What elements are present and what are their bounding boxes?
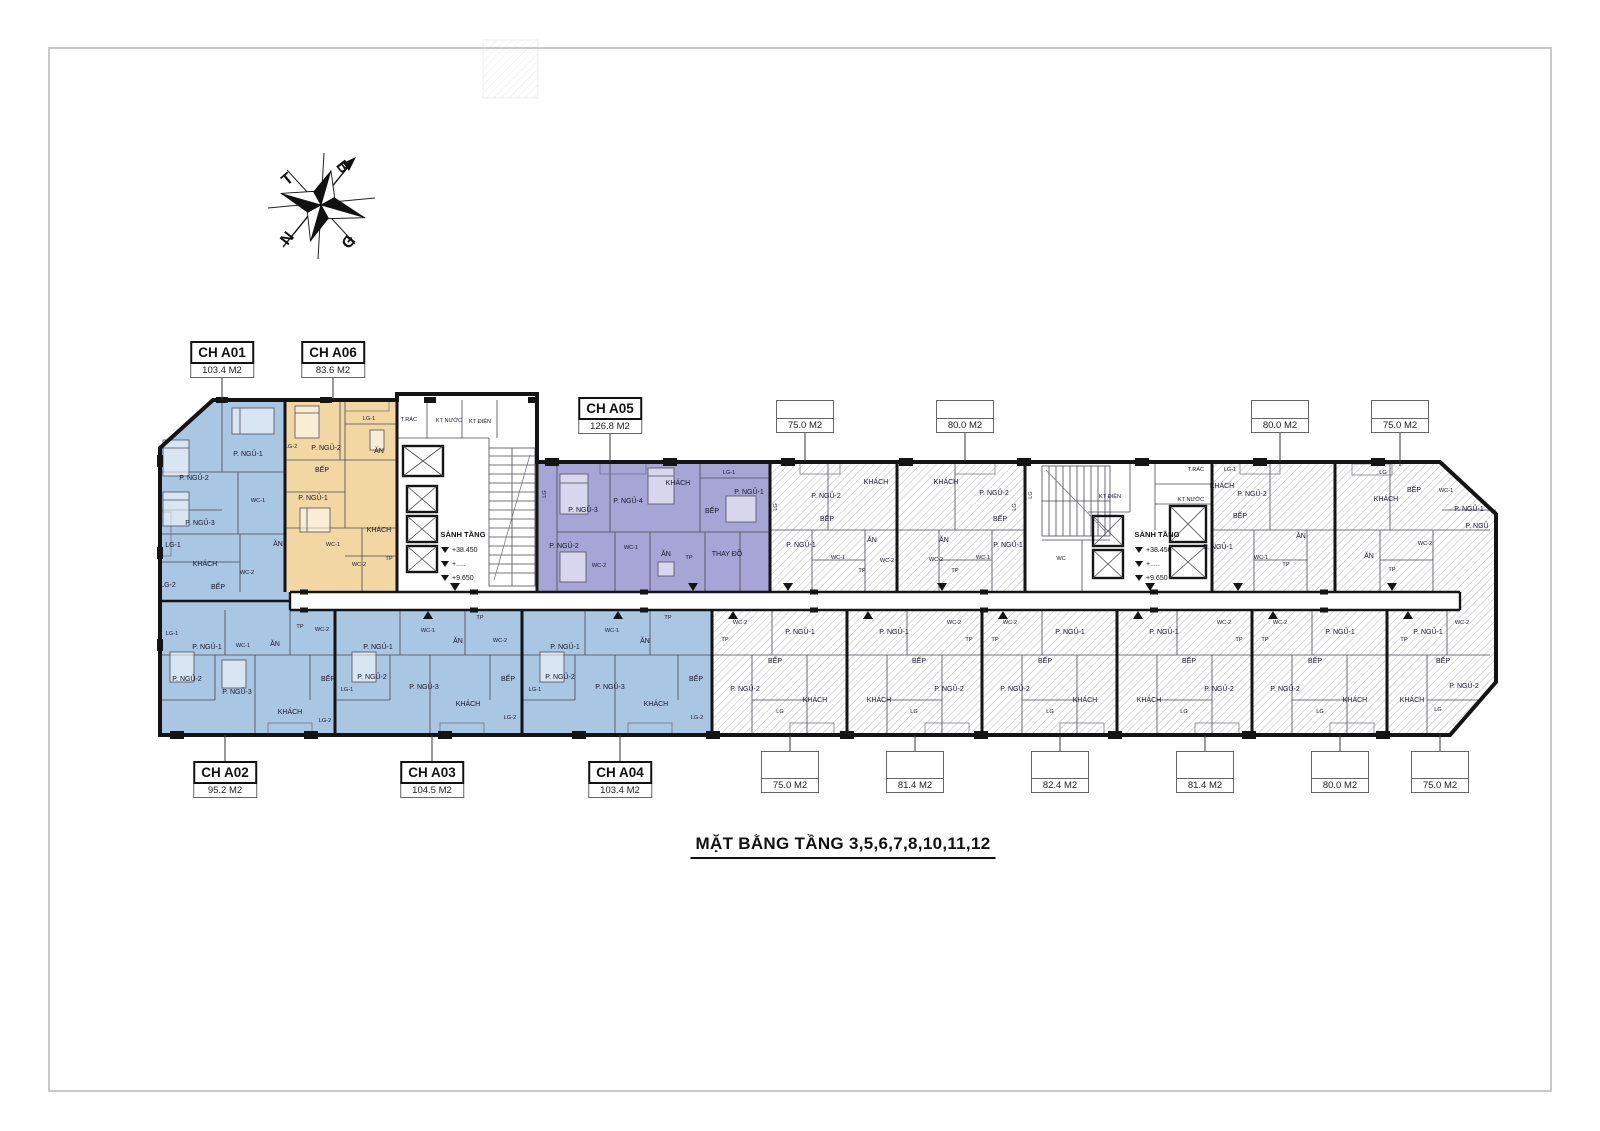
unit-tag-a04: CH A04 103.4 M2: [588, 761, 652, 798]
room-label: LG-2: [319, 718, 331, 724]
room-label: KHÁCH: [1374, 494, 1399, 503]
room-label: KHÁCH: [456, 699, 481, 708]
room-label: TP: [858, 568, 865, 574]
unit-area: 103.4 M2: [190, 364, 254, 378]
room-label: LG-2: [691, 715, 703, 721]
unit-area: 80.0 M2: [1311, 779, 1369, 793]
unit-top-2-fill: [897, 462, 1025, 592]
unit-bottom-5-fill: [1252, 610, 1387, 735]
room-label: P. NGỦ-2: [1000, 684, 1030, 693]
room-label: KHÁCH: [1343, 695, 1368, 704]
level-label: +38.450: [452, 547, 478, 554]
unit-code: CH A01: [190, 341, 254, 364]
room-label: KHÁCH: [934, 477, 959, 486]
room-label: LG: [1434, 707, 1441, 713]
room-label: T.RÁC: [1188, 466, 1204, 473]
room-label: TP: [965, 637, 972, 643]
room-label: TP: [1282, 562, 1289, 568]
level-label: +38.450: [1146, 547, 1172, 554]
drawing-sheet: B T N Đ: [0, 0, 1600, 1131]
unit-tag-bottom-6: 75.0 M2: [1411, 751, 1469, 793]
room-label: KHÁCH: [278, 707, 303, 716]
room-label: WC-1: [624, 545, 638, 551]
unit-top-4-fill: [1335, 462, 1496, 610]
unit-area: 75.0 M2: [1371, 419, 1429, 433]
compass-west-label: T: [278, 170, 297, 189]
room-label: WC-2: [947, 620, 961, 626]
room-label: WC-2: [880, 558, 894, 564]
room-label: TP: [1388, 567, 1395, 573]
room-label: P. NGỦ-4: [613, 496, 643, 505]
room-label: KHÁCH: [864, 477, 889, 486]
room-label: KHÁCH: [803, 695, 828, 704]
room-label: WC-1: [421, 628, 435, 634]
room-label: TP: [685, 555, 692, 561]
room-label: ĂN: [1296, 531, 1306, 540]
level-label: +.....: [1146, 561, 1160, 568]
room-label: LG-1: [165, 542, 181, 549]
unit-area: 75.0 M2: [776, 419, 834, 433]
room-label: P. NGỦ-2: [979, 488, 1009, 497]
unit-area: 82.4 M2: [1031, 779, 1089, 793]
room-label: P. NGỦ-2: [1449, 681, 1479, 690]
room-label: WC-2: [929, 557, 943, 563]
room-label: P. NGỦ-1: [298, 493, 328, 502]
room-label: WC-1: [326, 542, 340, 548]
room-label: P. NGỦ-3: [595, 682, 625, 691]
unit-code-empty: [1311, 751, 1369, 779]
unit-tag-a06: CH A06 83.6 M2: [301, 341, 365, 378]
room-label: TP: [476, 615, 483, 621]
unit-area: 75.0 M2: [1411, 779, 1469, 793]
unit-tag-top-4: 75.0 M2: [1371, 400, 1429, 433]
unit-code-empty: [886, 751, 944, 779]
room-label: P. NGỦ-1: [192, 642, 222, 651]
room-label: P. NGỦ-2: [811, 491, 841, 500]
room-label: P. NGỦ-2: [549, 541, 579, 550]
unit-area: 81.4 M2: [1176, 779, 1234, 793]
unit-area: 81.4 M2: [886, 779, 944, 793]
room-label: WC-2: [592, 563, 606, 569]
room-label: KHÁCH: [644, 699, 669, 708]
room-label: P. NGỦ-1: [1203, 542, 1233, 551]
room-label: ĂN: [867, 535, 877, 544]
room-label: WC-2: [1217, 620, 1231, 626]
room-label: KHÁCH: [666, 478, 691, 487]
level-label: +9.650: [452, 575, 474, 582]
floor-plan-canvas: B T N Đ: [0, 0, 1600, 1131]
room-label: LG: [910, 709, 917, 715]
unit-tag-top-1: 75.0 M2: [776, 400, 834, 433]
unit-code: CH A02: [193, 761, 257, 784]
room-label: P. NGỦ-2: [1270, 684, 1300, 693]
room-label: ĂN: [273, 539, 283, 548]
room-label: KHÁCH: [193, 559, 218, 568]
room-label: WC-1: [831, 555, 845, 561]
unit-tag-top-2: 80.0 M2: [936, 400, 994, 433]
room-label: P. NGỦ-2: [311, 443, 341, 452]
unit-tag-a02: CH A02 95.2 M2: [193, 761, 257, 798]
room-label: WC: [1056, 556, 1065, 562]
room-label: ĂN: [270, 639, 280, 648]
room-label: TP: [951, 568, 958, 574]
room-label: LG: [1316, 709, 1323, 715]
room-label: LG-1: [341, 687, 353, 693]
unit-area: 75.0 M2: [761, 779, 819, 793]
unit-code-empty: [1176, 751, 1234, 779]
room-label: T.RÁC: [401, 416, 417, 423]
room-label: P. NGỦ-2: [934, 684, 964, 693]
room-label: LG-1: [363, 416, 375, 422]
room-label: KHÁCH: [1210, 481, 1235, 490]
compass-east-label: Đ: [337, 232, 358, 252]
room-label: LG: [1180, 709, 1187, 715]
unit-tag-bottom-3: 82.4 M2: [1031, 751, 1089, 793]
corridor: [290, 592, 1460, 610]
unit-code: CH A05: [578, 397, 642, 420]
room-label: KHÁCH: [367, 525, 392, 534]
room-label: LG: [542, 490, 548, 497]
room-label: ĂN: [453, 636, 463, 645]
unit-tag-a05: CH A05 126.8 M2: [578, 397, 642, 434]
room-label: ĂN: [661, 549, 671, 558]
unit-code-empty: [1411, 751, 1469, 779]
room-label: P. NGỦ-2: [545, 672, 575, 681]
room-label: LG-1: [529, 687, 541, 693]
room-label: P. NGỦ-1: [1325, 627, 1355, 636]
unit-code: CH A03: [400, 761, 464, 784]
room-label: KHÁCH: [1400, 695, 1425, 704]
plan-title: MẶT BẰNG TẦNG 3,5,6,7,8,10,11,12: [691, 834, 996, 859]
room-label: P. NGỦ-1: [550, 642, 580, 651]
room-label: KT ĐIỆN: [1099, 492, 1121, 500]
room-label: WC-1: [1439, 488, 1453, 494]
room-label: P. NGỦ-2: [1204, 684, 1234, 693]
unit-tag-bottom-5: 80.0 M2: [1311, 751, 1369, 793]
room-label: P. NGỦ-1: [785, 627, 815, 636]
room-label: LG: [773, 503, 779, 510]
room-label: TP: [1235, 637, 1242, 643]
room-label: ĂN: [939, 535, 949, 544]
room-label: TP: [664, 615, 671, 621]
room-label: TP: [296, 624, 303, 630]
unit-area: 103.4 M2: [588, 784, 652, 798]
unit-area: 95.2 M2: [193, 784, 257, 798]
room-label: WC-2: [1418, 541, 1432, 547]
room-label: TP: [1261, 637, 1268, 643]
room-label: KHÁCH: [1137, 695, 1162, 704]
unit-code: CH A06: [301, 341, 365, 364]
room-label: P. NGỦ-2: [172, 674, 202, 683]
unit-area: 126.8 M2: [578, 420, 642, 434]
room-label: ĂN: [1364, 551, 1374, 560]
room-label: WC-1: [251, 498, 265, 504]
room-label: ĂN: [374, 446, 384, 455]
room-label: WC-2: [733, 620, 747, 626]
unit-area: 83.6 M2: [301, 364, 365, 378]
unit-code-empty: [1031, 751, 1089, 779]
unit-tag-bottom-4: 81.4 M2: [1176, 751, 1234, 793]
unit-tag-bottom-1: 75.0 M2: [761, 751, 819, 793]
room-label: LG-2: [285, 444, 297, 450]
lobby-label: SẢNH TẦNG: [1134, 529, 1179, 539]
unit-tag-a03: CH A03 104.5 M2: [400, 761, 464, 798]
level-label: +9.650: [1146, 575, 1168, 582]
unit-code-empty: [1371, 400, 1429, 419]
room-label: KT NƯỚC: [1178, 496, 1204, 503]
room-label: KT NƯỚC: [436, 417, 462, 424]
room-label: P. NGỦ-1: [233, 449, 263, 458]
level-label: +.....: [452, 561, 466, 568]
room-label: P. NGỦ-2: [179, 473, 209, 482]
unit-area: 80.0 M2: [1251, 419, 1309, 433]
unit-code-empty: [761, 751, 819, 779]
room-label: WC-2: [240, 570, 254, 576]
room-label: LG-1: [1224, 467, 1236, 473]
lobby-label: SẢNH TẦNG: [440, 529, 485, 539]
room-label: P. NGỦ-1: [1454, 504, 1484, 513]
unit-code-empty: [776, 400, 834, 419]
room-label: P. NGỦ-1: [993, 540, 1023, 549]
room-label: WC-1: [1254, 555, 1268, 561]
room-label: LG: [1046, 709, 1053, 715]
room-label: P. NGỦ-2: [1237, 489, 1267, 498]
room-label: P. NGỦ-1: [363, 642, 393, 651]
room-label: P. NGỦ-1: [1055, 627, 1085, 636]
room-label: LG: [776, 709, 783, 715]
unit-top-3-fill: [1212, 462, 1335, 592]
room-label: WC-2: [315, 627, 329, 633]
room-label: WC-1: [236, 643, 250, 649]
room-label: P. NGỦ-2: [357, 672, 387, 681]
unit-bottom-1-fill: [712, 610, 847, 735]
room-label: WC-2: [493, 638, 507, 644]
room-label: WC-2: [1273, 620, 1287, 626]
room-label: LG: [1012, 503, 1018, 510]
room-label: LG-1: [166, 631, 178, 637]
room-label: LG: [1028, 491, 1034, 498]
unit-bottom-4-fill: [1117, 610, 1252, 735]
room-label: LG-1: [723, 470, 735, 476]
room-label: P. NGỦ-3: [185, 518, 215, 527]
room-label: P. NGỦ-2: [730, 684, 760, 693]
unit-tag-top-3: 80.0 M2: [1251, 400, 1309, 433]
unit-code-empty: [1251, 400, 1309, 419]
room-label: LG: [1379, 470, 1386, 476]
room-label: TP: [1400, 637, 1407, 643]
room-label: P. NGỦ-1: [1413, 627, 1443, 636]
room-label: LG-2: [504, 715, 516, 721]
unit-bottom-3-fill: [982, 610, 1117, 735]
room-label: WC-2: [1003, 620, 1017, 626]
unit-code-empty: [936, 400, 994, 419]
room-label: WC-1: [976, 555, 990, 561]
room-label: WC-2: [352, 562, 366, 568]
unit-tag-bottom-2: 81.4 M2: [886, 751, 944, 793]
room-label: KHÁCH: [867, 695, 892, 704]
room-label: WC-2: [1455, 620, 1469, 626]
room-label: TP: [721, 637, 728, 643]
unit-code: CH A04: [588, 761, 652, 784]
unit-bottom-2-fill: [847, 610, 982, 735]
room-label: TP: [991, 637, 998, 643]
room-label: P. NGỦ-1: [1149, 627, 1179, 636]
roof-stair-shaft-ghost: [483, 40, 538, 98]
unit-area: 80.0 M2: [936, 419, 994, 433]
room-label: KT ĐIỆN: [469, 417, 491, 425]
room-label: P. NGỦ-1: [786, 540, 816, 549]
room-label: P. NGỦ-3: [568, 505, 598, 514]
room-label: KHÁCH: [1073, 695, 1098, 704]
unit-area: 104.5 M2: [400, 784, 464, 798]
compass-rose: B T N Đ: [268, 153, 375, 259]
room-label: P. NGỦ-1: [734, 487, 764, 496]
room-label: P. NGỦ-3: [222, 687, 252, 696]
room-label: LG-2: [160, 582, 176, 589]
unit-tag-a01: CH A01 103.4 M2: [190, 341, 254, 378]
room-label: P. NGỦ-3: [409, 682, 439, 691]
room-label: TP: [385, 556, 392, 562]
room-label: ĂN: [640, 636, 650, 645]
room-label: WC-1: [605, 628, 619, 634]
room-label: P. NGỦ: [1465, 521, 1488, 530]
room-label: P. NGỦ-1: [879, 627, 909, 636]
